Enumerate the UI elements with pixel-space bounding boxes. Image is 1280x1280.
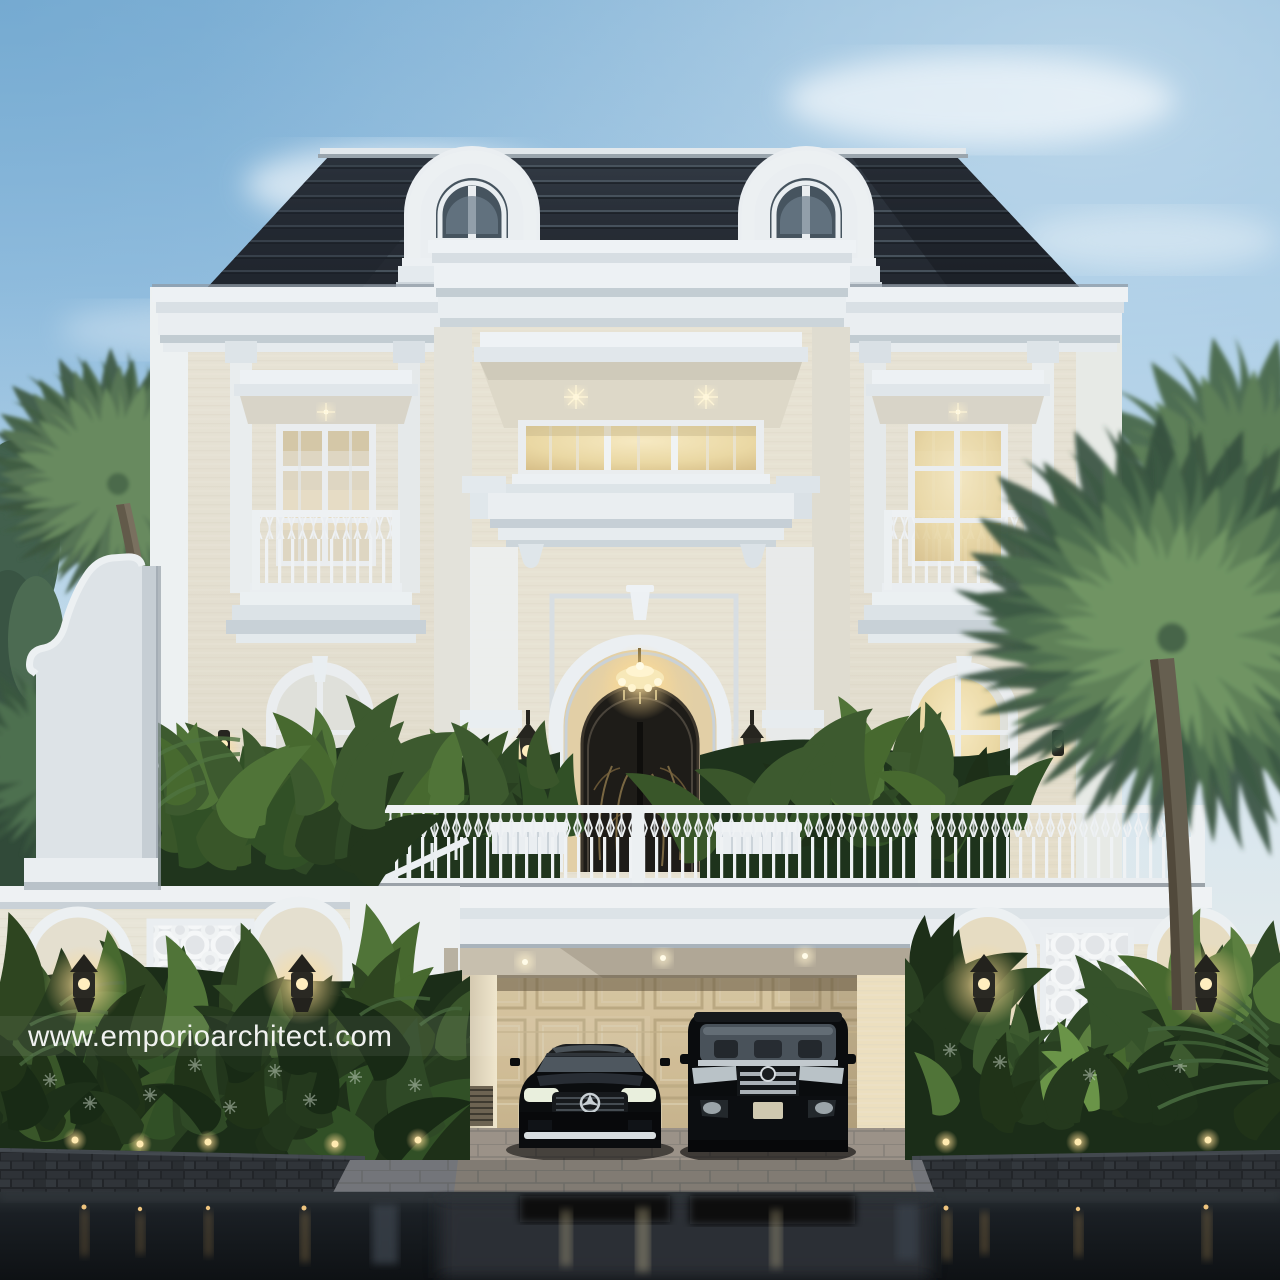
svg-text:www.emporioarchitect.com: www.emporioarchitect.com xyxy=(27,1020,392,1053)
